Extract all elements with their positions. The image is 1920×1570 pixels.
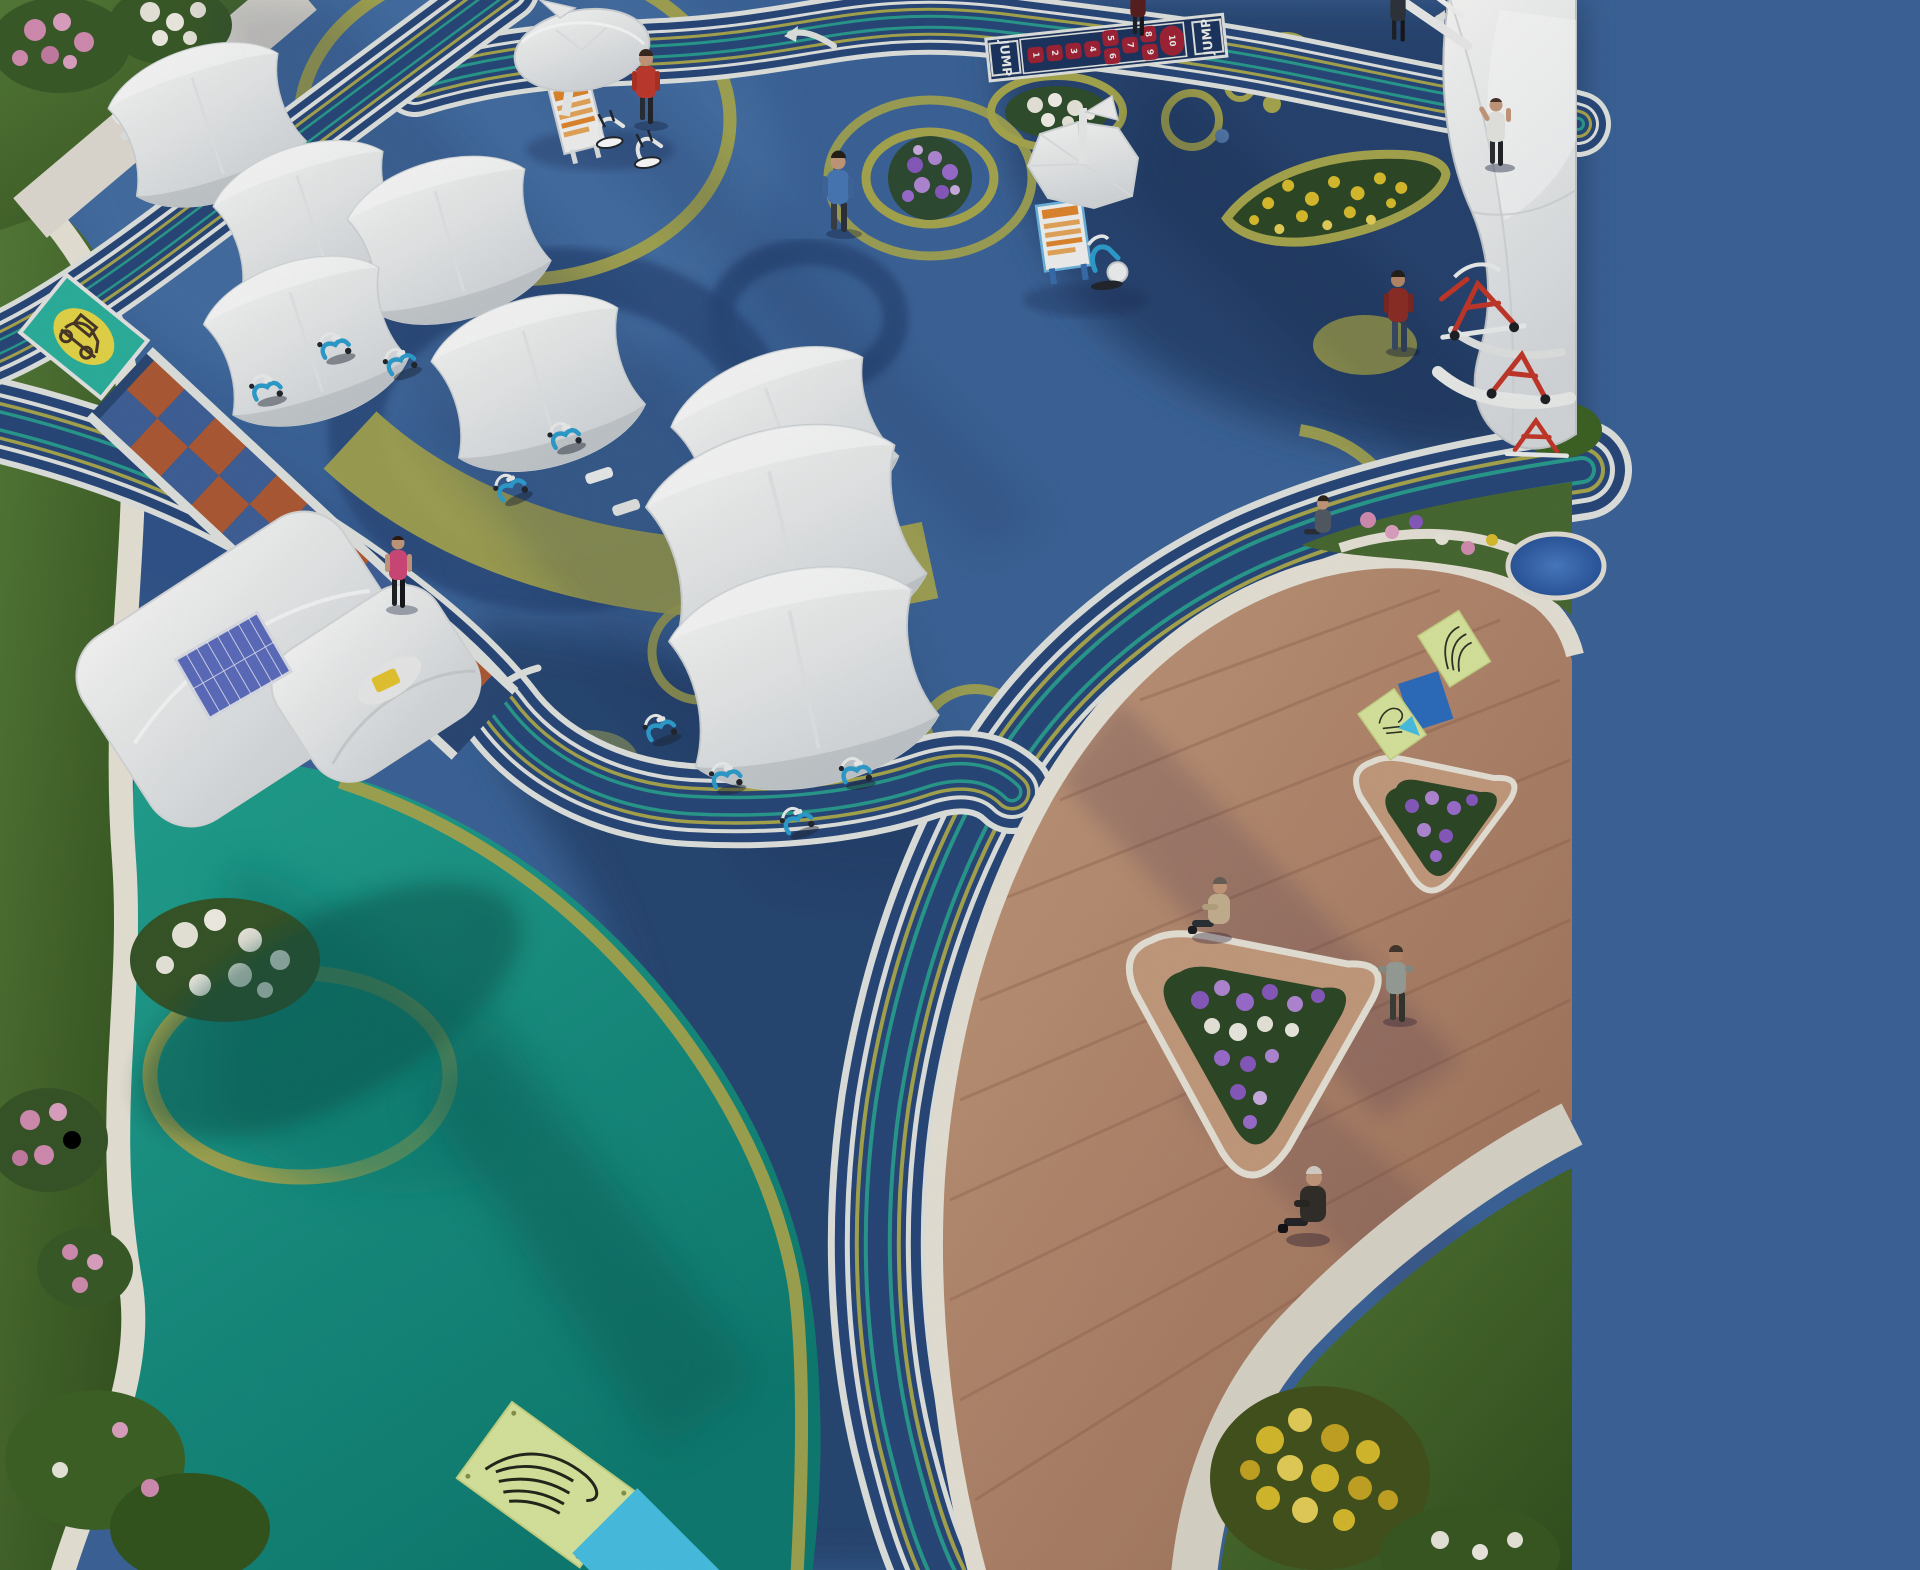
- park-aerial-render: Aerial 3D rendering of a smart outdoor f…: [0, 0, 1920, 1570]
- park-render-stage: Aerial 3D rendering of a smart outdoor f…: [0, 0, 1920, 1570]
- surface-grain: [0, 0, 1920, 1570]
